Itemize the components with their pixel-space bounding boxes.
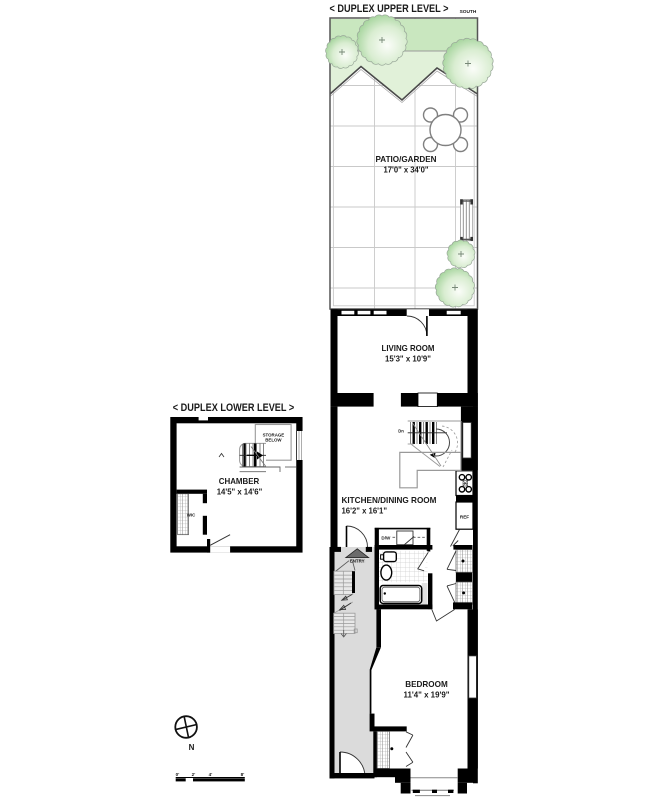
svg-text:16'2" x 16'1": 16'2" x 16'1"	[342, 506, 388, 516]
svg-text:WIC: WIC	[187, 513, 196, 518]
svg-text:ENTRY: ENTRY	[350, 558, 365, 563]
svg-text:17'0" x 34'0": 17'0" x 34'0"	[384, 165, 429, 175]
svg-text:BEDROOM: BEDROOM	[405, 679, 448, 689]
svg-text:SOUTH: SOUTH	[460, 9, 477, 15]
svg-text:15'3" x 10'9": 15'3" x 10'9"	[385, 354, 431, 364]
svg-text:BELOW: BELOW	[265, 438, 282, 443]
svg-text:KITCHEN/DINING ROOM: KITCHEN/DINING ROOM	[342, 495, 437, 505]
svg-text:REF: REF	[460, 514, 469, 519]
svg-text:4': 4'	[209, 772, 213, 777]
svg-text:Dn: Dn	[398, 429, 404, 434]
svg-text:CHAMBER: CHAMBER	[219, 476, 260, 486]
svg-text:8': 8'	[241, 772, 245, 777]
svg-text:LIVING ROOM: LIVING ROOM	[382, 343, 435, 353]
svg-text:< DUPLEX UPPER LEVEL >: < DUPLEX UPPER LEVEL >	[330, 3, 449, 15]
svg-text:D/W: D/W	[381, 536, 391, 541]
svg-text:< DUPLEX LOWER LEVEL >: < DUPLEX LOWER LEVEL >	[173, 402, 295, 414]
svg-text:N: N	[189, 743, 195, 752]
svg-text:PATIO/GARDEN: PATIO/GARDEN	[376, 154, 437, 164]
svg-text:2': 2'	[192, 772, 196, 777]
svg-text:14'5" x 14'6": 14'5" x 14'6"	[217, 486, 263, 496]
svg-text:0': 0'	[176, 772, 180, 777]
svg-text:11'4" x 19'9": 11'4" x 19'9"	[404, 690, 450, 700]
